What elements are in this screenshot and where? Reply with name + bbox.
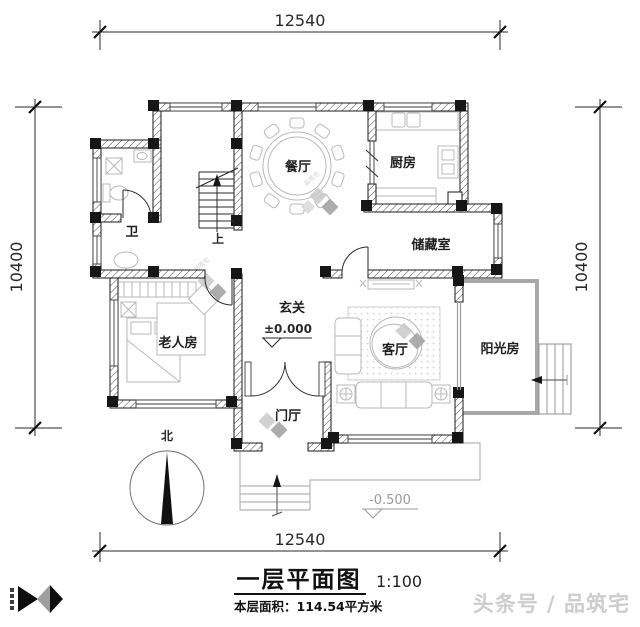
tv-cabinet <box>360 280 422 289</box>
entry-elevation-marker: ±0.000 <box>262 322 312 347</box>
bottom-dimension: 12540 <box>92 530 508 562</box>
svg-text:10400: 10400 <box>572 242 591 293</box>
room-label-sunroom: 阳光房 <box>480 341 519 357</box>
svg-text:10400: 10400 <box>7 242 26 293</box>
area-note: 本层面积：114.54平方米 <box>234 599 383 614</box>
room-label-elder-room: 老人房 <box>157 335 197 351</box>
bed <box>118 282 220 382</box>
logo-diamond-left <box>37 585 50 613</box>
top-dimension: 12540 <box>92 11 508 50</box>
right-dimension: 10400 <box>572 99 622 436</box>
room-label-bath: 卫 <box>125 225 138 240</box>
title-block: 一层平面图 1:100 本层面积：114.54平方米 <box>234 567 422 614</box>
stair-up-label: 上 <box>212 231 224 246</box>
north-label: 北 <box>161 428 173 443</box>
svg-text:-0.500: -0.500 <box>369 493 411 508</box>
floor-plan-drawing: 品筑宅 品筑宅 <box>0 0 640 627</box>
room-label-storage: 储藏室 <box>410 237 450 253</box>
svg-text:12540: 12540 <box>275 530 326 549</box>
left-dimension: 10400 <box>7 99 62 436</box>
svg-text:±0.000: ±0.000 <box>264 322 312 336</box>
north-compass: 北 <box>130 428 204 525</box>
compass-needle <box>161 452 173 524</box>
plan-scale: 1:100 <box>376 572 422 591</box>
svg-text:12540: 12540 <box>275 11 326 30</box>
ground-elevation-marker: -0.500 <box>362 493 418 518</box>
side-table <box>337 385 355 403</box>
toilet <box>103 184 128 202</box>
logo-diamond-right <box>50 585 63 613</box>
side-table <box>432 385 450 403</box>
room-label-dining: 餐厅 <box>284 159 311 175</box>
terrace-outline <box>240 443 480 516</box>
plan-title: 一层平面图 <box>237 567 362 593</box>
publisher-logo <box>10 585 63 613</box>
room-label-foyer: 门厅 <box>275 408 301 424</box>
bath-washbasin <box>106 150 151 174</box>
room-label-living: 客厅 <box>382 342 408 358</box>
room-label-kitchen: 厨房 <box>390 155 416 171</box>
logo-triangle <box>18 586 38 612</box>
floor-plan-page: 品筑宅 品筑宅 <box>0 0 640 627</box>
brand-watermark: 头条号 / 品筑宅 <box>473 592 630 616</box>
room-label-hall: 玄关 <box>279 300 305 316</box>
